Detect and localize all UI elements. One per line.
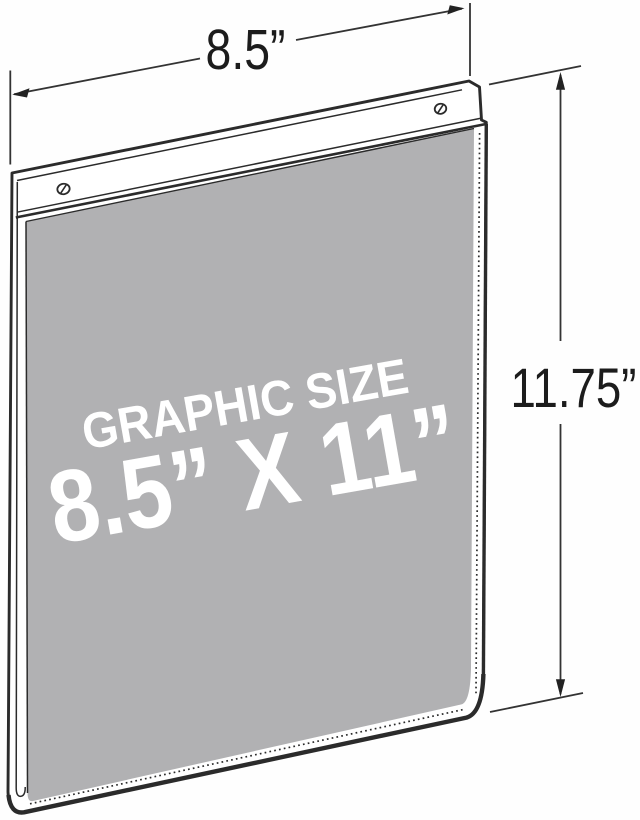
svg-text:11.75”: 11.75” <box>511 356 637 419</box>
svg-text:8.5”: 8.5” <box>206 18 286 82</box>
